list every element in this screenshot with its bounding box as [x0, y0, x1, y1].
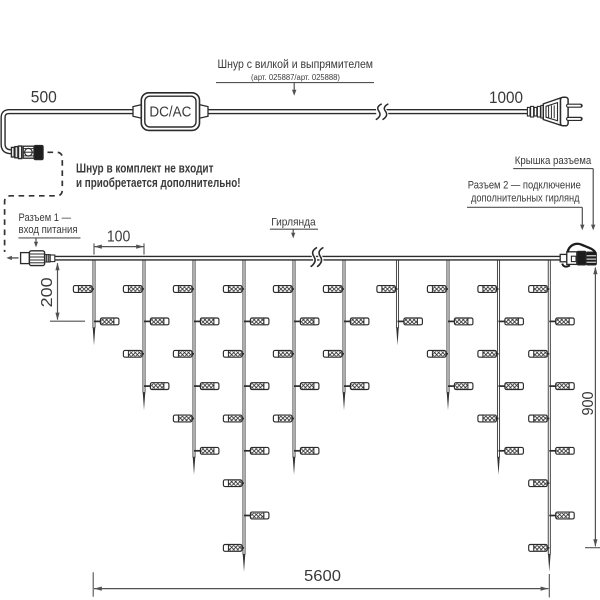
svg-text:дополнительных гирлянд: дополнительных гирлянд [471, 192, 580, 204]
svg-text:500: 500 [31, 89, 57, 107]
svg-text:Разъем 2 — подключение: Разъем 2 — подключение [468, 179, 581, 191]
svg-text:Шнур в комплект не входит: Шнур в комплект не входит [76, 162, 214, 176]
svg-text:200: 200 [39, 277, 56, 307]
svg-text:и приобретается дополнительно!: и приобретается дополнительно! [76, 176, 241, 190]
svg-text:Шнур с вилкой и выпрямителем: Шнур с вилкой и выпрямителем [218, 57, 374, 71]
svg-text:вход питания: вход питания [19, 224, 78, 236]
svg-text:5600: 5600 [304, 568, 341, 585]
svg-text:900: 900 [580, 391, 597, 415]
svg-text:1000: 1000 [489, 89, 523, 107]
svg-text:Гирлянда: Гирлянда [271, 216, 316, 228]
svg-text:100: 100 [107, 228, 131, 245]
svg-text:Разъем 1 —: Разъем 1 — [19, 212, 72, 224]
svg-text:(арт. 025887/арт. 025888): (арт. 025887/арт. 025888) [251, 72, 340, 82]
svg-text:Крышка разъема: Крышка разъема [515, 155, 592, 167]
svg-text:DC/AC: DC/AC [149, 105, 191, 121]
